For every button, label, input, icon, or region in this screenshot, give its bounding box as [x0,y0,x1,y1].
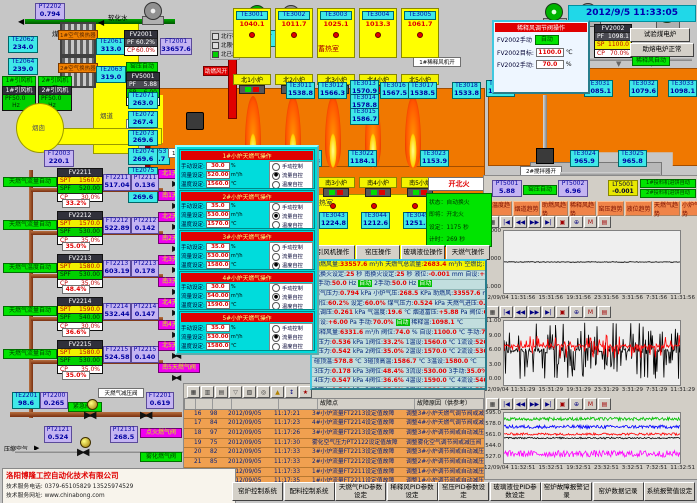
unit-label: % [566,61,572,68]
trend-button[interactable]: 天燃气趋势 [653,201,680,216]
mode-radio-option[interactable]: 流量自控 [270,252,312,261]
feeder2-auto-label: 2#投料机进饼自动 [640,189,696,198]
marker-icon[interactable]: M [584,306,597,318]
x-date: 12/09/04 [484,387,509,393]
row-marker [184,419,194,428]
setting-row: 手动设定: 35.0 % [180,242,268,251]
mode-radio-option[interactable]: ● 流量自控 [270,333,312,342]
setting-label: 流量设定: [181,333,205,341]
unit-label: ℃ [231,181,237,187]
alarm-code: 82 [210,448,228,457]
stirrer2-shaft [543,95,547,150]
te-tag: TE3002 [278,11,310,20]
nav-button[interactable]: 系统报警值设定 [644,482,695,501]
alarm-col-reason[interactable]: 故障原因（供参考） [415,399,483,409]
te-box: TE30321079.6 [629,80,658,97]
mode-radio-option[interactable]: 手动控制 [270,243,312,252]
setting-row: 流量设定: 540.00 m³/h [180,292,268,301]
panel-title: 3#小炉天燃气操作 [181,232,313,241]
soft-water-label: 软化水 [108,12,128,22]
atomizing-gas-valve-label[interactable]: 雾化燃气阀 [140,452,182,462]
first-icon[interactable]: |◀ [500,216,513,228]
grid-icon[interactable]: ▦ [486,398,499,410]
alarm-row[interactable]: 21 85 2012/09/05 11:17:33 2#小炉流量FT2212设定… [184,458,484,468]
icon-glyph: ⊕ [574,309,579,316]
mode-radio-option[interactable]: 手动控制 [270,324,312,333]
grid-row: 3压力:0.178 kPa 3阀位:48.4% 3流设:530.00 3手动:3… [312,368,485,378]
setting-input[interactable]: 540.00 [206,292,230,300]
pt2202-value: 0.794 [40,10,61,18]
sensor-dot-icon [330,203,336,209]
radio-icon [272,284,280,292]
grid-seg: 33557.6 [340,261,367,268]
trend-button[interactable]: 窑压趋势 [597,201,624,216]
y-tick: 0.00 [489,376,501,382]
last-icon[interactable]: ▶| [542,398,555,410]
x-tick: 11:31:29 [511,387,536,393]
chart-icon[interactable]: ▧ [243,386,256,398]
x-tick: 15:31:29 [538,387,563,393]
mode-radio-option[interactable]: 温度自控 [270,302,312,311]
status-row: 即将：开北火 [429,209,489,218]
grid-icon[interactable]: ▦ [486,306,499,318]
grid-seg: 60.0% [365,300,386,307]
trend-button-row: 窑温度趋势烟道趋势助燃风趋势稀释风趋势窑压趋势液位趋势天燃气趋势小炉气趋势 [485,201,697,216]
grid-seg: % 自设: [410,329,434,336]
te2201-box: TE220198.6 [12,392,40,409]
radio-icon [272,343,280,351]
operation-button[interactable]: 玻璃液位操作 [401,245,445,260]
icon-glyph: ▤ [602,219,608,226]
alarm-row[interactable]: 16 98 2012/09/05 11:17:21 3#小炉流量FT2213设定… [184,410,484,420]
dilution-auto-label: 稀释风自动 [632,56,670,66]
gas-train: 天燃气流量自动 FV2211 SPT1560.0SPF520.00CP30.0%… [0,168,200,383]
valve-actuator-icon [87,399,98,410]
grid-seg: m³/h 天燃气总流量: [367,261,423,268]
nav-button[interactable]: 窑压PID参数设定 [438,482,489,501]
grid-seg: 自动 [358,280,372,287]
burner-indicator [323,188,349,197]
south-furnace-label[interactable]: 南4小炉 [359,177,397,188]
radio-icon [272,302,280,310]
te-box: TE2073269.6 [128,130,158,147]
gas-train-group: 天燃气流量自动 FV2212 SPT1570.0SPF530.00CP35.0%… [0,211,200,254]
icon-glyph: ▣ [560,219,566,226]
test-electrode-button[interactable]: 试验煤电炉 [630,28,690,42]
trend-plot[interactable] [503,320,681,386]
gas-flow-controller[interactable]: FV2214 SPT1590.0SPF540.00CP30.0% [57,297,103,331]
lock-icon[interactable]: ▲ [271,386,284,398]
setting-input[interactable]: 1580.0 [206,342,230,350]
alarm-row[interactable]: 19 75 2012/09/05 11:17:30 雾化空气压力PT2122设定… [184,439,484,449]
alarm-header: 故障点 故障原因（供参考） [184,398,484,410]
grid-row: 气调压:0.261 kPa 气温度:19.6 ℃ 烟道富压:+5.88 Pa 阀… [312,309,485,319]
te-box: TE2074269.6 [128,148,158,165]
alarm-no: 21 [194,458,210,467]
alarm-no: 16 [194,410,210,419]
company-web[interactable]: 技术服务网址: www.chinabong.com [6,490,232,499]
grid-seg: 1温设: [404,339,424,346]
icon-glyph: ▶| [545,401,552,408]
pt2200-box: PT22000.265 [40,392,68,409]
regenerator-cell: TE3005 1061.7 [401,8,439,58]
mode-radio-option[interactable]: 手动控制 [270,284,312,293]
dilution-valve-popup: 稀释风调节阀操作 FV2002手动 自动 FV2002目标: 1100.0 ℃ … [492,20,590,94]
grid-seg: m³/h 空燃比: [446,261,484,268]
rows-icon[interactable]: ▤ [215,386,228,398]
nav-button[interactable]: 窑炉数据记录 [593,482,644,501]
grid-seg: kPa 3阀位: [351,368,383,375]
y-axis-ticks: 1595.01578.01561.01544.01527.0 [484,410,501,460]
nav-button[interactable]: 配料控制系统 [284,482,335,501]
gas-train-group: 天燃气流量自动 FV2215 SPT1580.0SPF530.00CP35.0%… [0,340,200,383]
ft2003-box: FT2003220.1 [44,150,74,167]
mode-radio-option[interactable]: ● 流量自控 [270,171,312,180]
alarm-code: 85 [210,458,228,467]
regenerator-label: 蓄热室 [318,44,339,54]
fv2002-target-input[interactable]: 1100.0 [536,48,564,57]
grid-seg: 12.5:1 [484,261,485,268]
icon-glyph: ▶▶ [530,309,539,316]
setting-input[interactable]: 1570.0 [206,220,230,228]
grid-seg: 3手动: [447,368,467,375]
radio-label: 手动控制 [282,163,303,170]
print-icon[interactable]: ▣ [556,306,569,318]
gas-flow-box: FT2212522.89 [103,217,131,234]
grid-seg: 63.9 [483,309,485,316]
alarm-code: 97 [210,429,228,438]
icon-glyph: ▶| [545,309,552,316]
last-icon[interactable]: ▶| [542,216,555,228]
trend-chart-panel-2: ▦ |◀ ◀◀ ▶▶ ▶| ▣ ⊕ M ▤ 11.009.006.003.000… [484,306,695,397]
alarm-row[interactable]: 18 97 2012/09/05 11:17:26 3#小炉流量FT2213设定… [184,429,484,439]
unit-label: m³/h [231,253,243,259]
setting-input[interactable]: 1560.0 [206,180,230,188]
zoom-icon[interactable]: ⊕ [570,306,583,318]
alarm-row[interactable]: 20 82 2012/09/05 11:17:33 3#小炉流量FT2213设定… [184,448,484,458]
datetime-value: 2012/9/5 11:33:05 [586,8,678,18]
setting-input[interactable]: 530.00 [206,211,230,219]
chart-toolbar: ▦ |◀ ◀◀ ▶▶ ▶| ▣ ⊕ M ▤ [486,216,611,228]
grid-seg: ℃ [455,319,464,326]
valve-icon[interactable]: ▶◀ [172,374,178,382]
nav-button[interactable]: 窑炉控制系统 [232,482,283,501]
te-box: TE30111538.8 [286,82,315,99]
grid-seg: 0.540 [332,387,351,390]
x-tick: 23:31:56 [594,295,619,301]
setting-row: 流量设定: 530.00 m³/h [180,211,268,220]
north-furnace-label[interactable]: 北1小炉 [233,74,271,85]
grid-seg: 1590.0 [424,377,447,384]
valve-output-percent: 33.2% [62,199,90,208]
setting-input[interactable]: 530.00 [206,333,230,341]
icon-glyph: |◀ [503,309,510,316]
marker-icon[interactable]: M [584,216,597,228]
mode-radio-option[interactable]: 温度自控 [270,180,312,189]
setting-row: 温度设定: 1590.0 ℃ [180,301,268,310]
operation-button[interactable]: 天燃气操作 [446,245,490,260]
radio-label: 温度自控 [282,303,303,310]
valve-icon[interactable]: ▶◀ [84,411,93,421]
valve-output-percent: 35.0% [62,371,90,380]
mode-radio-option[interactable]: 手动控制 [270,203,312,212]
flue-label: 烟道 [100,110,113,120]
unit-label: % [231,325,236,331]
y-tick: 3.00 [489,362,501,368]
gas-flow-controller[interactable]: FV2212 SPT1570.0SPF530.00CP35.0% [57,211,103,245]
print-icon[interactable]: ▣ [556,398,569,410]
setting-input[interactable]: 35.0 [206,243,230,251]
coal-gas-arrow-icon: ◀ [18,17,24,26]
setting-label: 温度设定: [181,220,205,228]
x-tick: 7:31:29 [646,387,667,393]
fv2001-controller[interactable]: FV2001 PF60.2%CP60.0% [124,30,158,56]
grid-seg: kPa 4阀位: [351,377,383,384]
setting-input[interactable]: 30.0 [206,283,230,291]
gas-flow-box: FT2214532.44 [103,303,131,320]
setting-row: 手动设定: 35.0 % [180,323,268,332]
nav-button[interactable]: 窑炉故障报警记录 [541,482,592,501]
mode-radio-option[interactable]: 温度自控 [270,221,312,230]
setting-row: 流量设定: 520.00 m³/h [180,170,268,179]
forward-icon[interactable]: ▶▶ [528,398,541,410]
fv2002-controller[interactable]: FV2002 PF1098.1SP1100.0CP70.0% [594,24,632,58]
y-tick: 11.00 [485,318,501,324]
pt5001-box: PT50015.88 [492,180,522,197]
mode-radio-group: 手动控制 ● 流量自控 温度自控 [269,283,313,311]
fan-icon [144,2,162,20]
mode-radio-option[interactable]: ● 流量自控 [270,212,312,221]
gas-flow-controller[interactable]: FV2211 SPT1560.0SPF520.00CP30.0% [57,168,103,202]
filter-icon[interactable]: ▽ [229,386,242,398]
grid-row: 煤气压力:0.794 kPa 小炉气压:268.5 KPa 助燃风:33557.… [312,290,485,300]
x-tick: 23:32:51 [594,465,619,471]
grid-seg: 5温设: [404,387,424,390]
grid-seg: 530.00 [475,348,485,355]
icon-glyph: ▥ [205,389,211,396]
alarm-no: 20 [194,448,210,457]
alarm-code: 98 [210,410,228,419]
alarm-reason: 调整3#小炉调节阀或自动减压阀 [406,429,484,438]
trend-chart-panel-1: ▦ |◀ ◀◀ ▶▶ ▶| ▣ ⊕ M ▤ 1.0000.000-1.000 [484,216,695,305]
grid-seg: Hz [407,280,418,287]
chimney-label: 烟囱 [32,122,45,132]
south-gas-valve-label[interactable]: 南5天燃气阀 [158,363,200,373]
columns-icon[interactable]: ▥ [201,386,214,398]
x-axis-ticks: 12/09/04 11:31:2915:31:2919:31:2923:31:2… [484,387,695,393]
marker-icon[interactable]: M [584,398,597,410]
trend-button[interactable]: 小炉气趋势 [681,201,697,216]
grid-seg: ℃ [468,358,477,365]
ft2201-box: FT22010.619 [146,392,174,409]
gas-flow-controller[interactable]: FV2215 SPT1580.0SPF530.00CP35.0% [57,340,103,374]
grid-seg: 0.178 [332,368,351,375]
icon-glyph: ▤ [602,309,608,316]
gas-flow-controller[interactable]: FV2213 SPT1580.0SPF530.00CP35.0% [57,254,103,288]
panel-title: 1#小炉天燃气操作 [181,151,313,160]
zoom-icon[interactable]: ⊕ [570,398,583,410]
te-tag: TE3004 [362,11,394,20]
grid-seg: m³/h [480,290,485,297]
grid-seg: 4温设: [404,377,424,384]
rewind-icon[interactable]: ◀◀ [514,398,527,410]
te-box: TE2071263.0 [128,92,158,109]
icon-glyph: ★ [303,389,308,396]
trend-button[interactable]: 助燃风趋势 [541,201,568,216]
alarm-panel: ▦ ▥ ▤ ▽ ▧ ◎ ▲ ↕ ★ 故障点 [183,383,485,480]
export-icon[interactable]: ▤ [598,398,611,410]
trend-button[interactable]: 烟道趋势 [513,201,540,216]
grid-seg: 25 [396,271,404,278]
trend-plot[interactable] [503,230,681,294]
row-marker [184,448,194,457]
grid-row: 4压力:0.547 kPa 4阀位:36.6% 4温设:1590.0 ℃ 4流设… [312,377,485,387]
setting-row: 温度设定: 1580.0 ℃ [180,341,268,350]
alarm-point: 3#小炉流量FT2213设定值故障 [312,429,406,438]
rewind-icon[interactable]: ◀◀ [514,216,527,228]
alarm-row[interactable]: 17 84 2012/09/05 11:17:23 4#小炉流量FT2214设定… [184,419,484,429]
unit-label: % [231,244,236,250]
te-box: TE30161567.5 [380,82,409,99]
radio-label: 手动控制 [282,285,303,292]
icon-glyph: ▤ [219,389,225,396]
forward-icon[interactable]: ▶▶ [528,306,541,318]
x-tick: 11:32:51 [511,465,536,471]
print-icon[interactable]: ▣ [556,216,569,228]
gas-flow-box: FT2211517.04 [103,174,131,191]
panel-title: 4#小炉天燃气操作 [181,273,313,282]
first-icon[interactable]: |◀ [500,306,513,318]
sort-icon[interactable]: ↕ [285,386,298,398]
mode-radio-option[interactable]: 手动控制 [270,162,312,171]
setting-input[interactable]: 520.00 [206,171,230,179]
ignition-gas-valve-label[interactable]: 点火燃气阀 [140,428,182,438]
electrode-normal-button[interactable]: 助熔电炉正常 [630,43,694,57]
row-marker [184,439,194,448]
clock-icon[interactable]: ◎ [257,386,270,398]
grid-row: 1压力:0.536 kPa 1阀位:33.2% 1温设:1560.0 ℃ 1流设… [312,339,485,349]
gas-control-popup: 1#小炉天燃气操作 手动设定: 30.0 % 流量设定: 520.00 m³/h… [175,145,319,355]
setting-input[interactable]: 1580.0 [206,261,230,269]
rewind-icon[interactable]: ◀◀ [514,306,527,318]
export-icon[interactable]: ▤ [598,306,611,318]
alarm-reason: 调整3#小炉天燃气调节阀或减压阀 [406,410,484,419]
mode-radio-option[interactable]: ● 温度自控 [270,261,312,270]
setting-input[interactable]: 30.0 [206,162,230,170]
trend-button[interactable]: 稀释风趋势 [569,201,596,216]
alarm-point: 雾化空气压力PT2122设定值故障 [312,439,406,448]
grid-seg: KPa 助燃风: [418,290,453,297]
x-tick: 3:31:56 [622,295,643,301]
south-furnace-label[interactable]: 南3小炉 [317,177,355,188]
chart-toolbar: ▦ |◀ ◀◀ ▶▶ ▶| ▣ ⊕ M ▤ [486,306,611,318]
last-icon[interactable]: ▶| [542,306,555,318]
icon-glyph: M [588,219,593,226]
alarm-reason: 调整4#小炉天燃气调节阀或减压阀 [406,419,484,428]
alarm-point: 1#小炉流量FT2211设定值故障 [312,477,406,481]
zoom-icon[interactable]: ⊕ [570,216,583,228]
mode-radio-option[interactable]: ● 流量自控 [270,293,312,302]
setting-input[interactable]: 530.00 [206,252,230,260]
grid-seg: 自动 [418,280,432,287]
icon-glyph: ◀◀ [516,401,525,408]
row-marker [184,410,194,419]
nav-button[interactable]: 稀释风PID参数设定 [387,482,438,501]
grid-seg: 70.0% [481,329,485,336]
radio-icon [272,253,280,261]
radio-icon [272,163,280,171]
grid-seg: 35.0% [383,348,404,355]
setting-input[interactable]: 1590.0 [206,301,230,309]
grid-seg: kPa 气温度: [353,309,387,316]
fv2002-auto-badge[interactable]: 自动 [535,35,559,45]
nav-button[interactable]: 玻璃液位PID参数设定 [490,482,541,501]
valve-icon[interactable]: ▶◀ [140,411,149,421]
dilution-fan1-label: 1#稀释风机开 [413,57,461,67]
fv2002-manual-input[interactable]: 70.0 [536,60,564,69]
trend-button[interactable]: 液位趋势 [625,201,652,216]
alarm-time: 11:17:26 [274,429,312,438]
grid-seg: 1100.0 [433,329,456,336]
mode-radio-group: 手动控制 流量自控 ● 温度自控 [269,242,313,270]
grid-seg: 50.0 [392,280,407,287]
radio-icon: ● [272,262,280,270]
x-tick: 23:31:29 [594,387,619,393]
radio-label: 温度自控 [282,181,303,188]
panel-title: 5#小炉天燃气操作 [181,313,313,322]
alarm-code: 75 [210,439,228,448]
alarm-col-point[interactable]: 故障点 [318,399,415,409]
forward-icon[interactable]: ▶▶ [528,216,541,228]
sensor-dot-icon [371,203,377,209]
alarm-reason: 调整3#小炉调节阀或自动减压阀 [406,448,484,457]
icon-glyph: ▦ [490,309,496,316]
regenerator-cell: TE3002 1011.7 [275,8,313,58]
radio-label: 流量自控 [282,253,303,260]
radio-label: 温度自控 [282,262,303,269]
icon-glyph: |◀ [503,401,510,408]
grid-seg: 2手动: [372,280,392,287]
alarm-time: 11:17:21 [274,410,312,419]
gas-supply-pipe [10,412,182,417]
export-icon[interactable]: ▤ [598,216,611,228]
grid-seg: ℃ 3温设: [417,358,445,365]
te-box: TE3024965.9 [570,150,599,167]
table-icon[interactable]: ▦ [187,386,200,398]
valve-output-percent: 35.0% [62,242,90,251]
alarm-code: 84 [210,419,228,428]
trend-plot[interactable] [503,412,681,464]
first-icon[interactable]: |◀ [500,398,513,410]
valve-output-percent: 48.4% [62,285,90,294]
alarm-time: 11:17:30 [274,439,312,448]
grid-seg: 1586.7 [393,358,416,365]
nav-button[interactable]: 天燃气PID参数设定 [335,482,386,501]
kiln-pressure-auto-label: 窑压自动 [523,185,557,195]
setting-input[interactable]: 35.0 [206,324,230,332]
operation-button[interactable]: 窑压操作 [356,245,400,260]
grid-seg: 19.6 [387,309,402,316]
te-value: 1025.1 [323,20,348,28]
grid-seg: 3流设: [404,368,424,375]
valve-icon[interactable]: ▶◀ [77,448,86,458]
x-tick: 3:32:51 [622,465,643,471]
fire-direction-box: 开北火 [428,177,490,191]
grid-seg: 0.524 [414,300,433,307]
mode-radio-option[interactable]: 温度自控 [270,342,312,351]
setting-input[interactable]: 35.0 [206,202,230,210]
grid-seg: 0.261 [334,309,353,316]
